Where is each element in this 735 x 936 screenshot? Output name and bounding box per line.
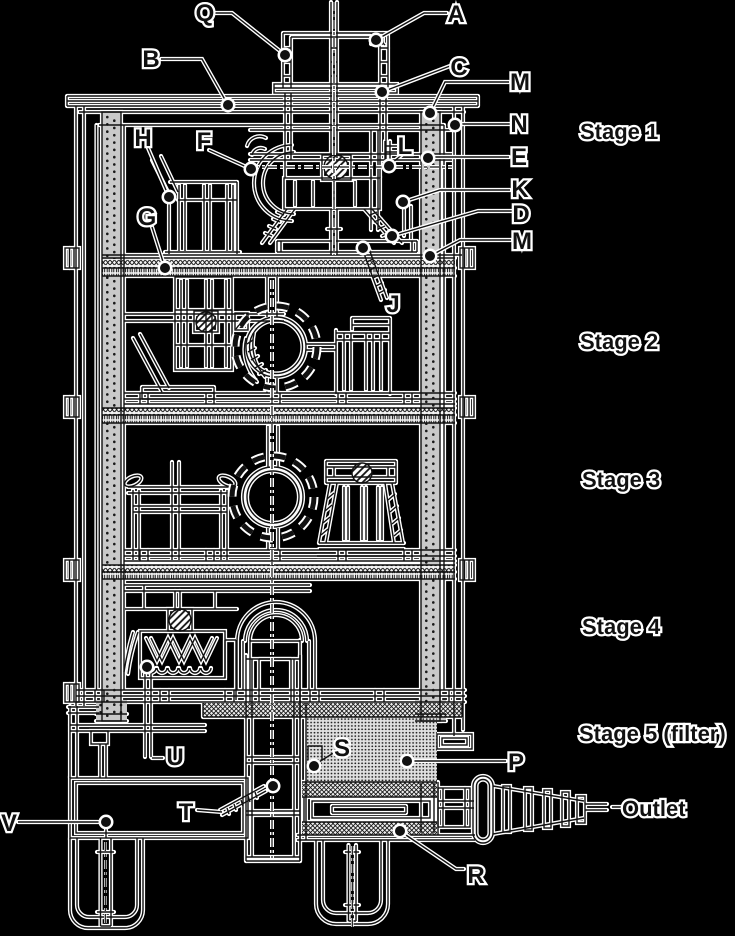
- svg-text:V: V: [1, 810, 17, 837]
- svg-text:Q: Q: [196, 0, 215, 27]
- svg-text:D: D: [512, 201, 529, 228]
- svg-text:Outlet: Outlet: [622, 796, 686, 821]
- svg-text:J: J: [386, 291, 399, 318]
- svg-text:E: E: [511, 144, 527, 171]
- svg-text:Stage 5 (filter): Stage 5 (filter): [579, 721, 726, 746]
- svg-text:B: B: [142, 46, 159, 73]
- svg-text:U: U: [166, 744, 183, 771]
- svg-text:T: T: [179, 799, 194, 826]
- svg-text:M: M: [512, 228, 532, 255]
- svg-text:G: G: [138, 204, 157, 231]
- svg-text:M: M: [510, 69, 530, 96]
- svg-text:S: S: [334, 735, 350, 762]
- svg-text:A: A: [447, 1, 464, 28]
- svg-text:C: C: [450, 54, 467, 81]
- svg-text:Stage 3: Stage 3: [582, 467, 660, 492]
- svg-text:N: N: [510, 111, 527, 138]
- svg-text:Stage 4: Stage 4: [582, 614, 661, 639]
- svg-text:R: R: [467, 862, 484, 889]
- svg-text:Stage 2: Stage 2: [580, 329, 658, 354]
- svg-text:Stage 1: Stage 1: [580, 119, 658, 144]
- svg-text:L: L: [398, 133, 413, 160]
- svg-text:H: H: [134, 125, 151, 152]
- svg-text:F: F: [197, 128, 212, 155]
- svg-text:P: P: [508, 749, 524, 776]
- svg-text:K: K: [511, 176, 529, 203]
